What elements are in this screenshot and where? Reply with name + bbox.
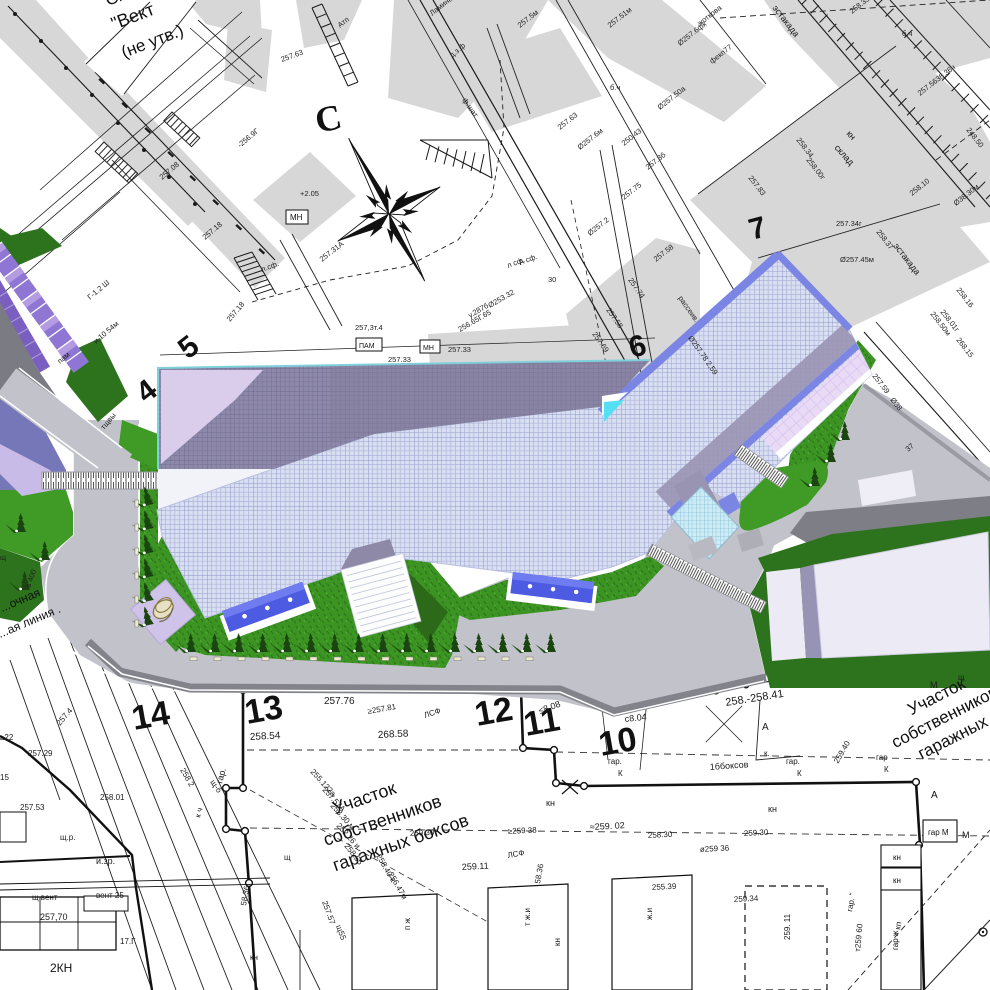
svg-text:≥259 38: ≥259 38 bbox=[508, 825, 538, 836]
svg-text:30: 30 bbox=[548, 275, 556, 284]
svg-text:К: К bbox=[618, 769, 623, 778]
svg-text:А: А bbox=[931, 790, 938, 801]
svg-text:≥22: ≥22 bbox=[0, 733, 14, 742]
svg-text:М: М bbox=[930, 680, 938, 690]
svg-text:+2.05: +2.05 bbox=[300, 189, 319, 198]
svg-text:б.ч: б.ч bbox=[610, 83, 620, 92]
svg-text:268.58: 268.58 bbox=[378, 728, 410, 741]
svg-text:259.11: 259.11 bbox=[462, 861, 489, 872]
svg-text:А: А bbox=[762, 722, 769, 733]
svg-text:гар.: гар. bbox=[786, 757, 800, 766]
svg-text:259.30: 259.30 bbox=[744, 828, 769, 838]
svg-text:кн: кн bbox=[768, 804, 777, 814]
svg-text:кн: кн bbox=[893, 853, 901, 862]
svg-text:257.33: 257.33 bbox=[388, 355, 411, 364]
svg-text:М: М bbox=[962, 830, 970, 840]
svg-text:258.01: 258.01 bbox=[100, 793, 125, 802]
svg-text:258.30: 258.30 bbox=[648, 830, 673, 840]
svg-text:ж.и: ж.и bbox=[645, 908, 654, 920]
svg-text:255.39: 255.39 bbox=[652, 882, 677, 892]
svg-text:кн: кн bbox=[553, 938, 562, 946]
svg-text:гар.: гар. bbox=[608, 757, 622, 766]
svg-text:15: 15 bbox=[0, 773, 9, 782]
svg-text:257.34г: 257.34г bbox=[836, 219, 862, 228]
svg-text:259.34: 259.34 bbox=[734, 894, 759, 904]
svg-text:258.54: 258.54 bbox=[250, 730, 282, 743]
svg-text:ø259 36: ø259 36 bbox=[700, 843, 730, 854]
svg-text:257,70: 257,70 bbox=[40, 912, 68, 922]
svg-text:257,3т.4: 257,3т.4 bbox=[355, 323, 383, 332]
svg-text:14: 14 bbox=[129, 694, 173, 738]
svg-text:К: К bbox=[884, 765, 889, 774]
svg-text:кн: кн bbox=[893, 876, 901, 885]
svg-text:щ: щ bbox=[958, 673, 965, 682]
svg-text:257.29: 257.29 bbox=[28, 749, 53, 758]
svg-text:2КН: 2КН bbox=[50, 961, 72, 975]
svg-text:и.зр.: и.зр. bbox=[96, 856, 115, 866]
svg-text:щ: щ bbox=[0, 553, 6, 562]
svg-text:259. 11: 259. 11 bbox=[783, 913, 792, 940]
svg-text:щ: щ bbox=[284, 853, 291, 862]
svg-text:257.53: 257.53 bbox=[20, 803, 45, 812]
svg-text:МН: МН bbox=[423, 345, 434, 352]
svg-text:К: К bbox=[797, 769, 802, 778]
svg-text:13: 13 bbox=[242, 688, 286, 732]
svg-text:щ.р.: щ.р. bbox=[60, 833, 75, 842]
svg-text:257.33: 257.33 bbox=[448, 345, 471, 354]
svg-text:т ж.и: т ж.и bbox=[523, 908, 532, 926]
svg-text:гар: гар bbox=[876, 753, 888, 762]
svg-text:≈259. 02: ≈259. 02 bbox=[590, 820, 625, 832]
svg-text:12: 12 bbox=[472, 690, 516, 734]
svg-text:МН: МН bbox=[290, 213, 303, 222]
svg-text:257.76: 257.76 bbox=[324, 696, 355, 707]
svg-text:Ø257.45м: Ø257.45м bbox=[840, 255, 874, 264]
svg-text:п ж: п ж bbox=[403, 917, 412, 930]
svg-text:кп: кп bbox=[893, 921, 903, 930]
svg-text:к.: к. bbox=[764, 749, 770, 758]
svg-text:гар М: гар М bbox=[928, 828, 949, 837]
svg-text:кн: кн bbox=[250, 953, 258, 962]
svg-text:вент 25: вент 25 bbox=[96, 891, 124, 900]
svg-text:ПАМ: ПАМ bbox=[359, 343, 375, 350]
svg-text:259.30: 259.30 bbox=[410, 828, 435, 838]
svg-text:гар ж: гар ж bbox=[891, 930, 900, 950]
svg-text:щ вент: щ вент bbox=[32, 893, 58, 902]
svg-text:б.ч: б.ч bbox=[902, 29, 912, 38]
svg-text:17.Г.: 17.Г. bbox=[120, 937, 137, 946]
svg-text:кн: кн bbox=[546, 798, 555, 808]
